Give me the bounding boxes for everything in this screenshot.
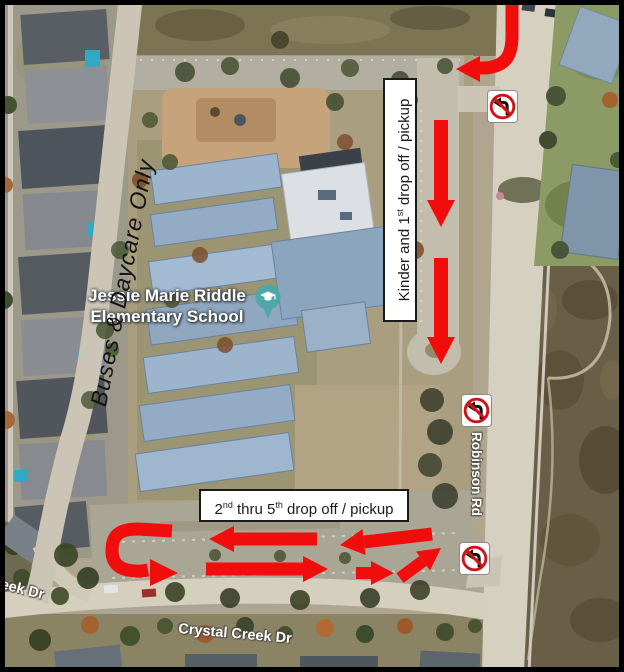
no-left-turn-icon — [487, 90, 518, 123]
grades-text-2: thru 5 — [233, 501, 276, 518]
kinder-text-1: Kinder and 1 — [396, 216, 413, 301]
kinder-dropoff-text: Kinder and 1st drop off / pickup — [385, 80, 415, 320]
grades-superscript-2: th — [275, 500, 283, 510]
arrow-down-1 — [427, 120, 455, 227]
arrow-uturn — [112, 529, 178, 586]
arrow-down-2 — [427, 258, 455, 364]
no-left-turn-icon — [461, 394, 492, 427]
route-arrows — [0, 0, 624, 672]
grades-dropoff-label: 2nd thru 5th drop off / pickup — [199, 489, 409, 522]
kinder-superscript: st — [395, 209, 405, 216]
robinson-rd-label: Robinson Rd — [463, 418, 489, 530]
arrow-left-1 — [209, 526, 317, 552]
no-left-turn-sign-2 — [461, 394, 492, 427]
arrow-right-long — [206, 556, 328, 582]
arrow-diagonal — [400, 548, 441, 578]
school-name-line1: Jessie Marie Riddle — [72, 288, 262, 304]
no-left-turn-sign-1 — [487, 90, 518, 123]
satellite-map: Jessie Marie Riddle Elementary School Bu… — [0, 0, 624, 672]
kinder-dropoff-label: Kinder and 1st drop off / pickup — [383, 78, 417, 322]
arrow-left-2 — [340, 529, 432, 555]
grades-text-1: 2 — [214, 501, 222, 518]
grades-text-3: drop off / pickup — [283, 501, 394, 518]
no-left-turn-icon — [459, 542, 490, 575]
map-frame: Jessie Marie Riddle Elementary School Bu… — [0, 0, 624, 672]
arrow-entry-curve — [456, 0, 512, 82]
grades-superscript-1: nd — [223, 500, 233, 510]
kinder-text-2: drop off / pickup — [396, 99, 413, 210]
robinson-rd-text: Robinson Rd — [463, 418, 489, 530]
arrow-right-short — [356, 561, 394, 585]
no-left-turn-sign-3 — [459, 542, 490, 575]
